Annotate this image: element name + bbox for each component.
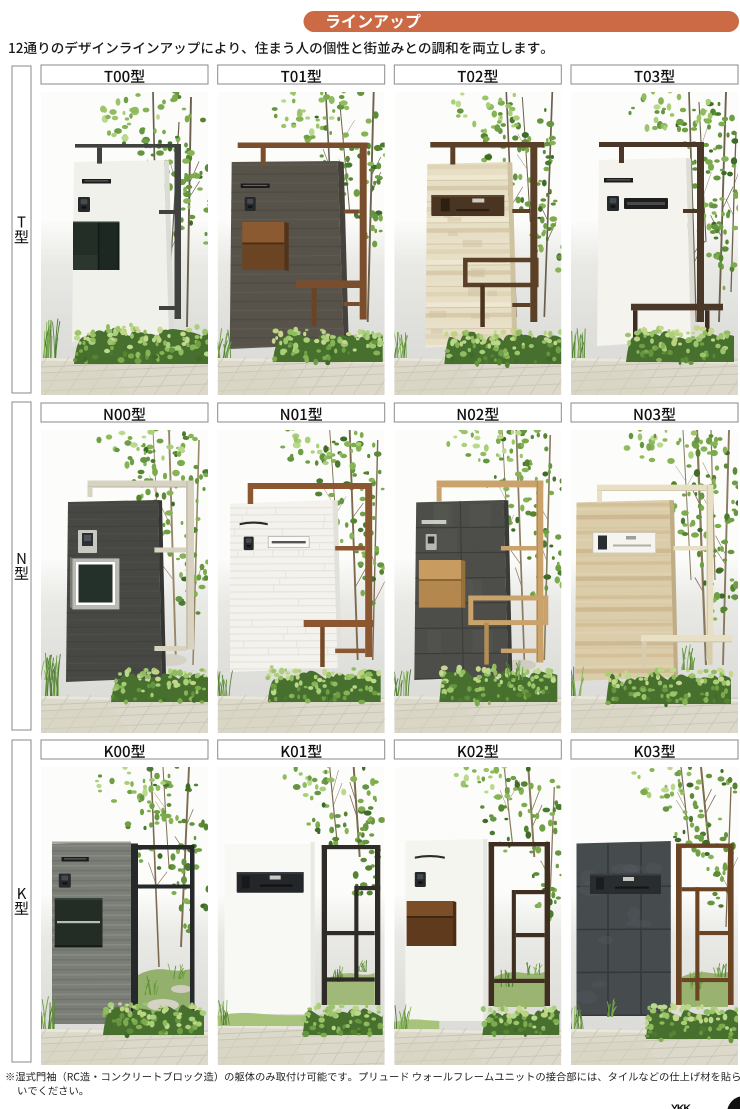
svg-text:YKK: YKK — [671, 1103, 691, 1109]
